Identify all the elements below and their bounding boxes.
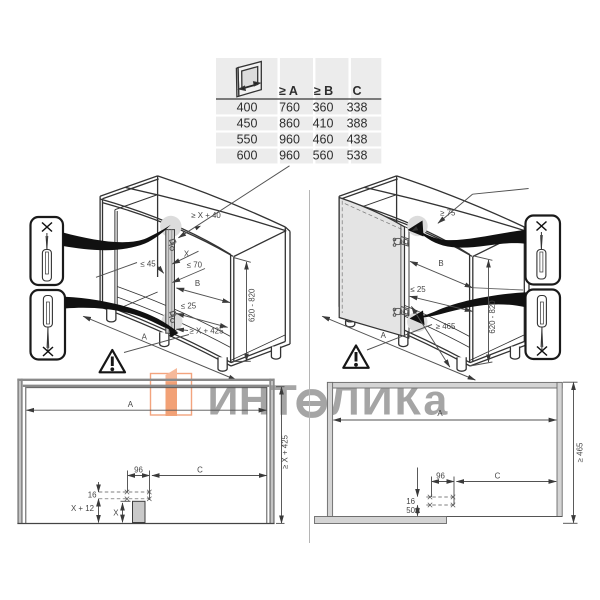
svg-text:X: X <box>184 250 190 259</box>
svg-text:438: 438 <box>347 133 368 147</box>
svg-text:A: A <box>128 400 134 409</box>
svg-text:C: C <box>197 466 203 475</box>
svg-text:550: 550 <box>237 133 258 147</box>
svg-text:16: 16 <box>88 491 97 500</box>
svg-text:760: 760 <box>279 101 300 115</box>
svg-text:A: A <box>437 409 443 418</box>
svg-text:96: 96 <box>436 472 445 481</box>
svg-text:620 - 820: 620 - 820 <box>488 300 497 334</box>
svg-text:460: 460 <box>313 133 334 147</box>
svg-text:400: 400 <box>237 101 258 115</box>
svg-text:X: X <box>113 509 119 518</box>
svg-text:338: 338 <box>347 101 368 115</box>
svg-text:410: 410 <box>313 117 334 131</box>
svg-text:X + 12: X + 12 <box>71 504 94 513</box>
svg-text:C: C <box>352 84 361 98</box>
svg-text:620 - 820: 620 - 820 <box>248 288 257 322</box>
svg-text:360: 360 <box>313 101 334 115</box>
svg-text:600: 600 <box>237 149 258 163</box>
svg-text:538: 538 <box>347 149 368 163</box>
svg-text:≥ X + 40: ≥ X + 40 <box>191 211 221 220</box>
svg-text:96: 96 <box>134 466 143 475</box>
svg-text:50: 50 <box>406 506 415 515</box>
svg-text:≥ B: ≥ B <box>314 84 333 98</box>
svg-text:A: A <box>381 331 387 340</box>
svg-text:≥ 465: ≥ 465 <box>436 322 456 331</box>
svg-text:B: B <box>438 259 443 268</box>
svg-text:≤ 25: ≤ 25 <box>181 302 197 311</box>
svg-text:16: 16 <box>406 497 415 506</box>
svg-text:≥ 465: ≥ 465 <box>576 442 585 462</box>
svg-text:≥ X + 425: ≥ X + 425 <box>281 434 290 469</box>
svg-text:≤ 25: ≤ 25 <box>410 285 426 294</box>
svg-text:960: 960 <box>279 133 300 147</box>
svg-text:860: 860 <box>279 117 300 131</box>
svg-text:B: B <box>195 279 200 288</box>
svg-text:≥ 75: ≥ 75 <box>440 208 456 217</box>
svg-text:ИНТ: ИНТ <box>208 377 298 425</box>
svg-text:≤ 45: ≤ 45 <box>140 260 156 269</box>
svg-text:≥ X + 425: ≥ X + 425 <box>190 327 225 336</box>
svg-text:A: A <box>142 333 148 342</box>
svg-text:560: 560 <box>313 149 334 163</box>
svg-text:960: 960 <box>279 149 300 163</box>
svg-text:388: 388 <box>347 117 368 131</box>
svg-text:450: 450 <box>237 117 258 131</box>
svg-text:≤ 70: ≤ 70 <box>187 261 203 270</box>
svg-text:≥ A: ≥ A <box>279 84 298 98</box>
svg-text:C: C <box>495 472 501 481</box>
